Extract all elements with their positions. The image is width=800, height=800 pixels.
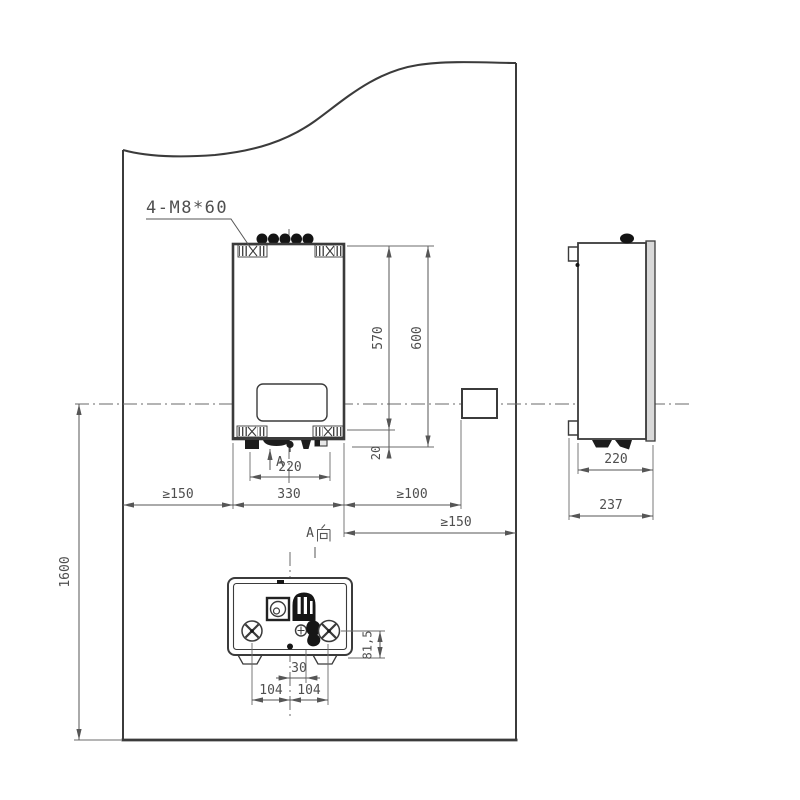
side-body: [578, 243, 646, 439]
mount-bracket-top-right: [315, 245, 343, 257]
connector-stub: [286, 441, 293, 448]
dim-600: 600: [410, 247, 428, 447]
bolt-callout: 4-M8*60: [146, 198, 250, 247]
dim-outlet-clearance: ≥100: [344, 487, 461, 505]
bracket-hatch: [316, 246, 324, 256]
front-view: [233, 234, 344, 453]
dim-570-label: 570: [371, 326, 386, 349]
dim-20-label: 20: [369, 446, 383, 460]
side-hook-bottom: [569, 421, 579, 435]
front-bottom-connectors: [245, 440, 327, 452]
dim-30-label: 30: [291, 661, 307, 676]
port-power-socket: [267, 598, 289, 620]
side-view: 220 237: [569, 234, 656, 521]
dim-outlet-clearance-label: ≥100: [396, 487, 427, 502]
pipe-fitting-center: [327, 629, 331, 633]
mount-bracket-bottom-right: [313, 426, 343, 437]
bracket-hatch: [333, 427, 342, 436]
dim-600-label: 600: [410, 326, 425, 349]
bottom-top-tick: [277, 580, 284, 584]
side-top-knob: [620, 234, 634, 244]
side-bottom-connector-2: [615, 440, 632, 450]
port-flue-dome: [293, 593, 316, 622]
side-pin: [576, 263, 580, 267]
bracket-hatch: [334, 246, 342, 256]
side-hook-top: [569, 247, 579, 261]
dim-right-clearance: ≥150: [344, 515, 516, 533]
bottom-foot-right: [313, 655, 337, 664]
dim-237-label: 237: [599, 498, 622, 513]
bracket-hatch: [314, 427, 323, 436]
dim-330-label: 330: [277, 487, 300, 502]
dome-slot: [310, 601, 313, 614]
port-gas-valve: [296, 625, 307, 636]
bracket-hatch: [239, 246, 248, 256]
side-bottom-connector-1: [592, 440, 612, 448]
glyph-stroke: [321, 534, 328, 539]
dome-slot: [298, 597, 301, 614]
bottom-view: 30 104 104 81,5: [228, 578, 385, 705]
installation-drawing-canvas: 4-M8*60 570 600 20 220: [0, 0, 800, 800]
dim-right-clearance-label: ≥150: [440, 515, 471, 530]
dim-104-left-label: 104: [259, 683, 283, 698]
mount-bracket-bottom-left: [237, 426, 267, 437]
pipe-fitting-center: [250, 629, 254, 633]
dim-1600-height: 1600: [58, 404, 121, 740]
bracket-hatch: [257, 427, 266, 436]
connector-block: [245, 440, 259, 449]
dim-left-clearance-label: ≥150: [162, 487, 193, 502]
bottom-center-pin: [287, 644, 293, 650]
control-panel-window: [257, 384, 327, 421]
bracket-hatch: [238, 427, 247, 436]
dim-330-width: 330: [233, 487, 344, 505]
dim-570: 570: [371, 247, 389, 430]
dim-220-front: 220: [250, 452, 330, 481]
dim-104-right-label: 104: [297, 683, 321, 698]
cjk-xiang-glyph: [318, 525, 331, 542]
bracket-hatch: [258, 246, 266, 256]
power-outlet-box: [462, 389, 497, 418]
dim-220-side-label: 220: [604, 452, 627, 467]
port-right-pipe: [319, 621, 340, 642]
section-view-title: A: [306, 525, 330, 559]
section-arrow-label: A: [276, 455, 284, 470]
connector-valve: [301, 440, 311, 449]
wall-top-break-line: [123, 62, 516, 156]
dim-20: 20: [369, 418, 389, 460]
dim-237-side: 237: [569, 498, 653, 516]
section-arrow-a: A: [270, 449, 284, 470]
connector-arc: [263, 440, 290, 446]
bottom-foot-left: [238, 655, 262, 664]
side-back-plate: [646, 241, 655, 441]
mount-bracket-top-left: [238, 245, 267, 257]
dim-1600-label: 1600: [58, 556, 73, 587]
glyph-stroke: [318, 530, 331, 542]
port-left-pipe: [242, 621, 262, 641]
dim-81-5-label: 81,5: [361, 631, 375, 660]
dim-220-side: 220: [578, 452, 653, 470]
glyph-stroke: [322, 525, 326, 529]
section-view-letter: A: [306, 526, 314, 541]
dim-left-clearance: ≥150: [123, 487, 233, 505]
connector-plate-dark: [315, 440, 320, 446]
bolt-callout-label: 4-M8*60: [146, 198, 228, 218]
dome-slot: [304, 597, 307, 614]
